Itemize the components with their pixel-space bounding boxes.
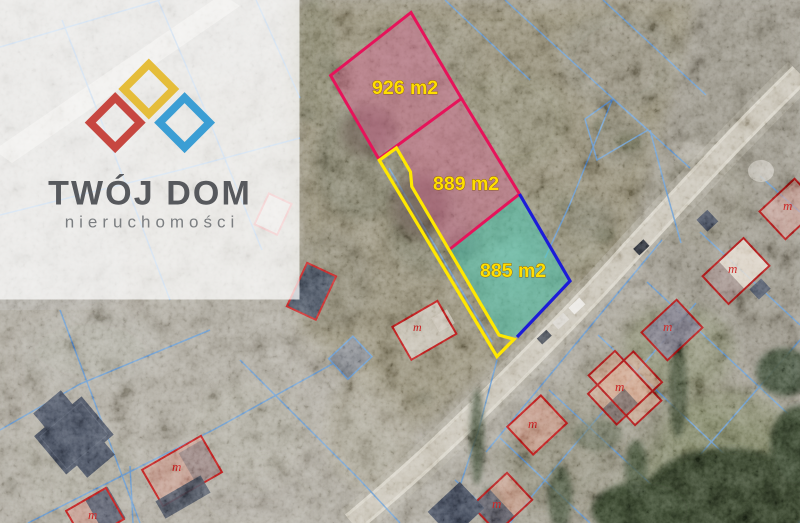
svg-text:889 m2: 889 m2 bbox=[433, 173, 499, 195]
svg-text:926 m2: 926 m2 bbox=[372, 77, 438, 99]
svg-text:nieruchomości: nieruchomości bbox=[65, 213, 240, 232]
svg-text:885 m2: 885 m2 bbox=[480, 260, 546, 282]
svg-text:TWÓJ DOM: TWÓJ DOM bbox=[48, 175, 252, 213]
